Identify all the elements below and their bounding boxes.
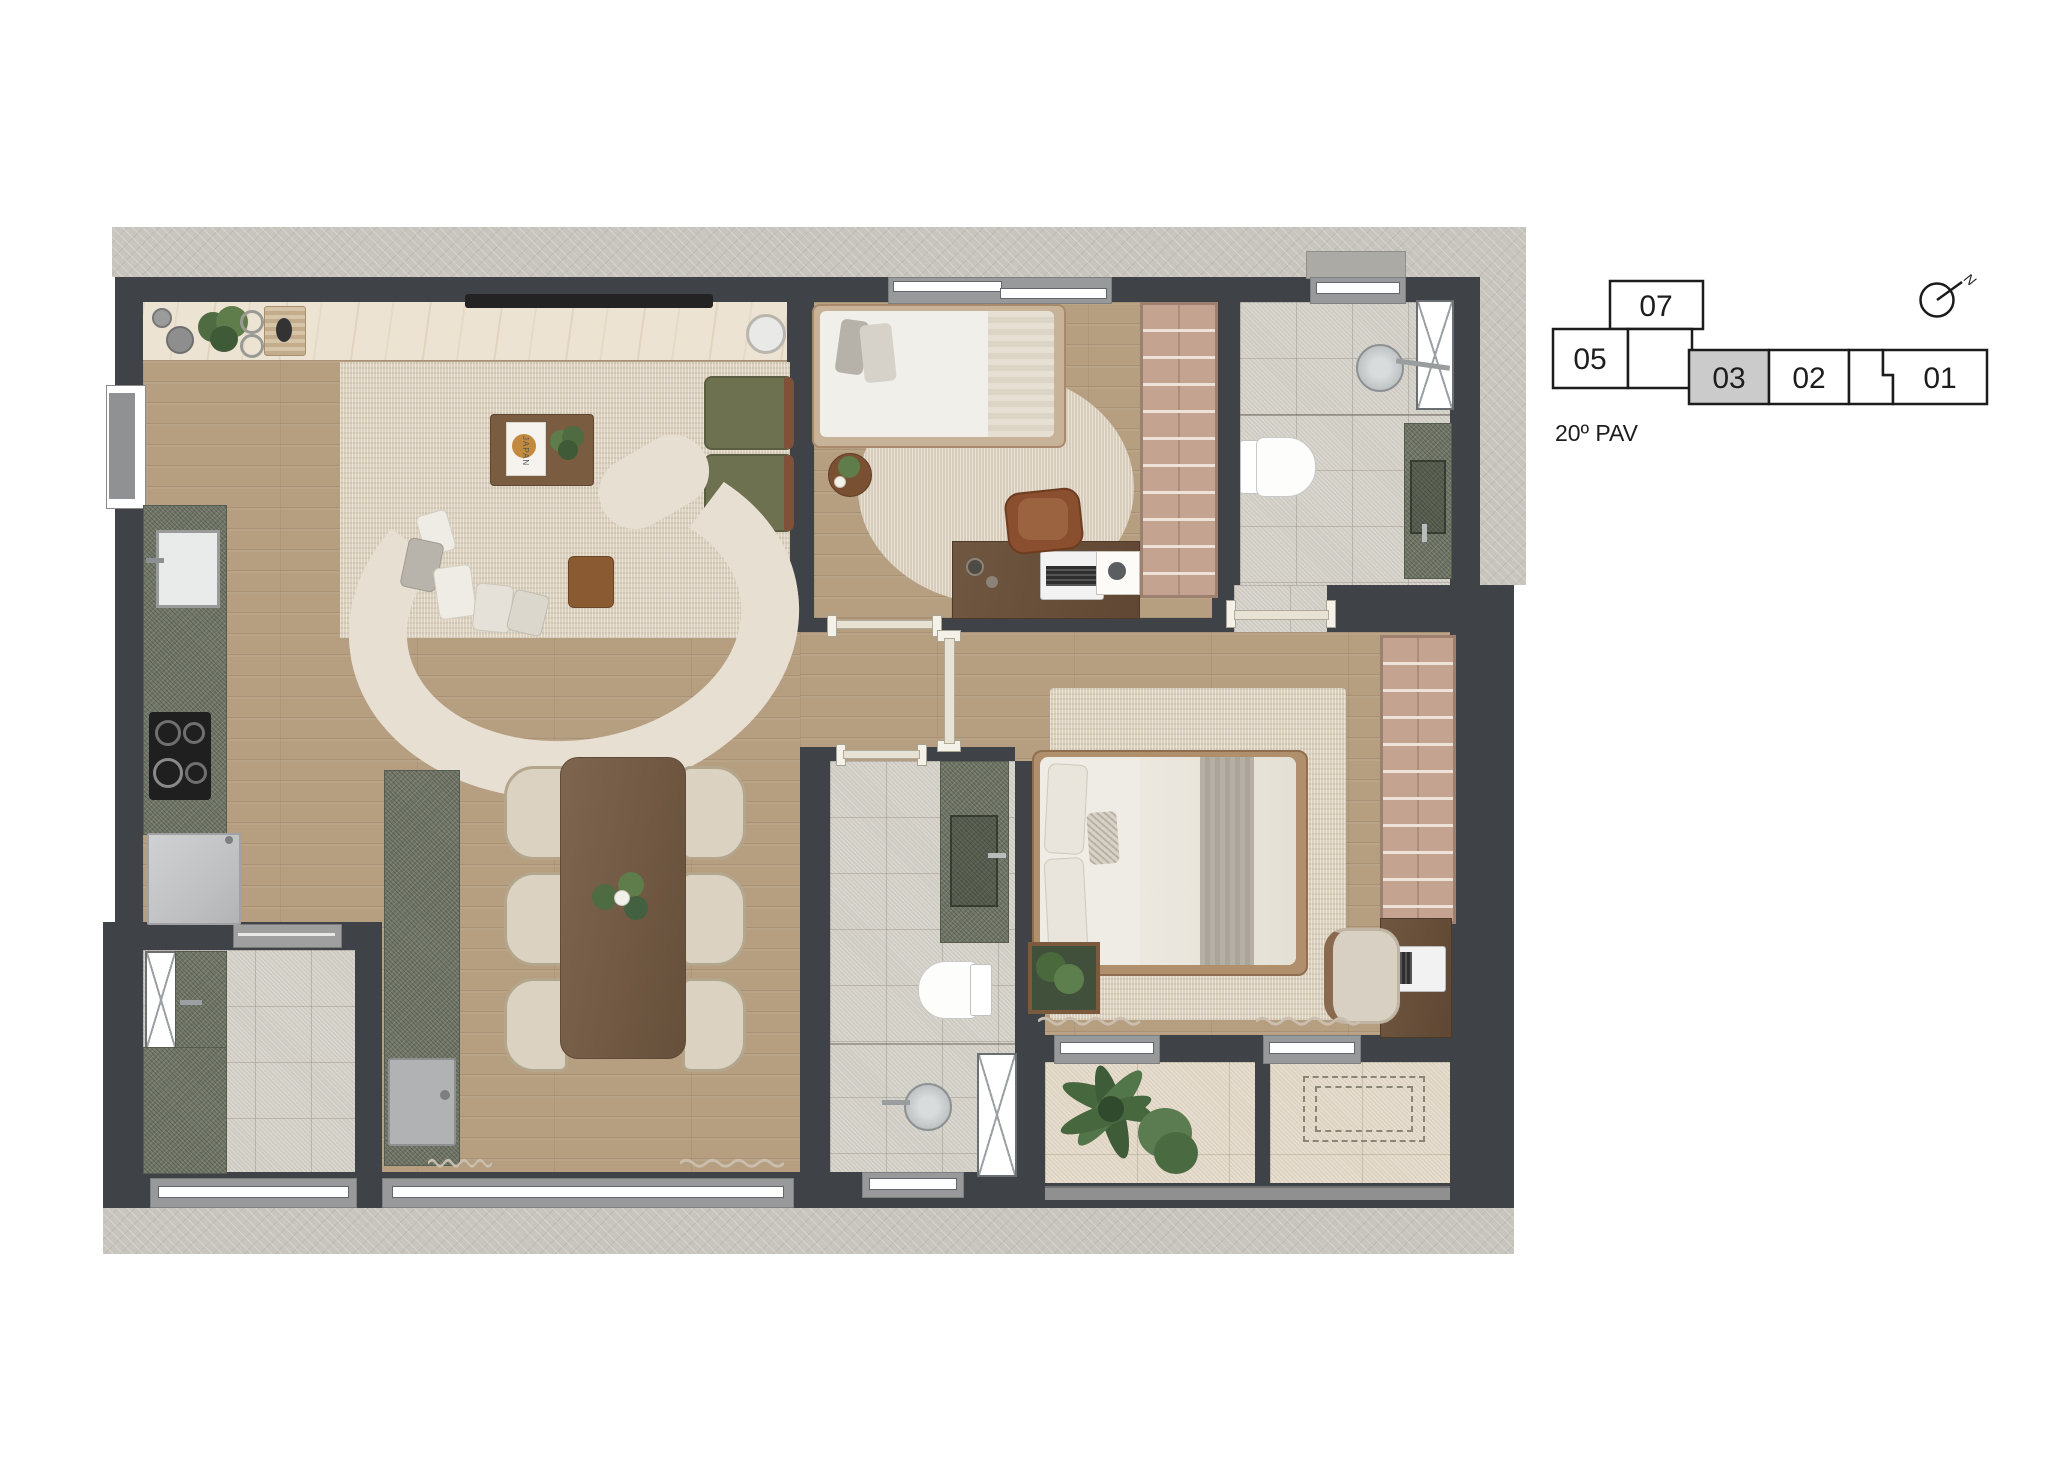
office-chair-cushion	[1018, 498, 1068, 540]
dining-chair-left-2	[504, 872, 568, 966]
shaft-laundry	[145, 951, 177, 1049]
curtain-wave-master-left	[1038, 1014, 1140, 1026]
master-door-leaf	[944, 638, 955, 744]
wall-laundry-right	[355, 922, 382, 1208]
balcony-palm	[1050, 1070, 1200, 1180]
master-throw	[1200, 757, 1254, 965]
refrigerator-hinge	[225, 836, 233, 844]
bathroom2-tile-line	[830, 1043, 1015, 1045]
dining-chair-right-3	[682, 978, 746, 1072]
side-table-plant	[838, 456, 860, 478]
cooktop-burner-1	[155, 720, 181, 746]
tv-panel	[465, 294, 713, 308]
laundry-sliding-door	[233, 924, 342, 948]
keyplan-unit-03-label: 03	[1712, 362, 1745, 395]
vessel-sink	[746, 314, 786, 354]
keyplan-unit-05-label: 05	[1573, 343, 1606, 376]
window-bedroom1-pane-right	[1000, 288, 1107, 299]
counter-ring-2	[240, 334, 264, 358]
kitchen-sink	[156, 530, 220, 608]
cooktop-burner-3	[153, 758, 183, 788]
master-wardrobe	[1380, 635, 1456, 924]
window-bedroom1-pane-left	[893, 281, 1002, 292]
bathroom2-shower-head	[904, 1083, 952, 1131]
bathroom1-faucet	[1422, 524, 1427, 542]
bathroom1-door-opening	[1234, 585, 1327, 632]
window-laundry-pane	[158, 1186, 349, 1198]
key-plan: 07 05 03 02 01 N 20º PAV	[1550, 253, 2020, 458]
cooktop-burner-2	[183, 722, 205, 744]
bathroom2-door-leaf	[843, 750, 920, 759]
floor-plan-page: JAPAN	[0, 0, 2048, 1479]
desk1-mouse	[1108, 562, 1126, 580]
concrete-band-bottom	[103, 1208, 1514, 1254]
bathroom1-shower-head	[1356, 344, 1404, 392]
dining-chair-left-1	[504, 766, 568, 860]
bathroom2-vanity-sink	[950, 815, 998, 907]
dining-centerpiece	[592, 870, 652, 924]
window-bathroom1-pane	[1316, 282, 1400, 294]
window-living-pane	[392, 1186, 784, 1198]
curtain-wave-living-left	[428, 1156, 492, 1168]
kitchen-sink-faucet	[146, 558, 164, 563]
island-appliance-handle	[440, 1090, 450, 1100]
cooktop-burner-4	[185, 762, 207, 784]
laundry-counter-lower	[143, 1047, 227, 1174]
window-master-2-pane	[1269, 1042, 1355, 1054]
ac-ledge	[1306, 251, 1406, 279]
wall-laundry-outer	[103, 922, 143, 1208]
keyplan-unit-01[interactable]: 01	[1883, 350, 1987, 404]
dining-chair-right-2	[682, 872, 746, 966]
island-appliance	[388, 1058, 456, 1146]
book-title: JAPAN	[521, 436, 530, 466]
dining-chair-left-3	[504, 978, 568, 1072]
coffee-table-plant	[550, 426, 586, 462]
counter-ring-1	[240, 310, 264, 334]
keyplan-unit-01-label: 01	[1923, 362, 1956, 395]
keyplan-unit-02-label: 02	[1792, 362, 1825, 395]
bathroom1-shower-line	[1240, 414, 1450, 416]
window-master-1-pane	[1060, 1042, 1154, 1054]
shaft-bathroom2	[977, 1053, 1017, 1177]
window-bathroom2-pane	[869, 1178, 957, 1190]
armchair-1	[704, 376, 794, 450]
bedroom1-wardrobe	[1140, 302, 1218, 598]
sofa-side-table	[568, 556, 614, 608]
desk1-laptop-keys	[1046, 566, 1096, 586]
keyplan-unit-07[interactable]: 07	[1610, 281, 1703, 329]
bathroom2-toilet-bowl	[918, 961, 978, 1019]
concrete-band-right	[1480, 277, 1526, 585]
master-accent-pillow	[1086, 811, 1120, 865]
keyplan-unit-02[interactable]: 02	[1769, 350, 1849, 404]
north-arrow-icon: N	[1921, 270, 1980, 316]
refrigerator	[147, 833, 241, 925]
curtain-wave-master-right	[1256, 1014, 1360, 1026]
sofa-pillow-3	[433, 564, 478, 621]
bathroom2-shower-arm	[882, 1100, 910, 1105]
bathroom2-faucet	[988, 853, 1006, 858]
laundry-faucet	[180, 1000, 202, 1005]
bedroom1-blanket	[988, 311, 1054, 437]
master-pillow-1	[1044, 763, 1089, 855]
bathroom1-vanity-sink	[1410, 460, 1446, 534]
keyplan-unit-03[interactable]: 03	[1689, 350, 1769, 404]
balcony-sill	[1045, 1186, 1450, 1200]
master-pillow-2	[1044, 857, 1089, 953]
bedroom1-door-leaf	[836, 620, 933, 629]
basket-bottle	[276, 318, 292, 342]
bathroom1-toilet-bowl	[1256, 437, 1316, 497]
master-planter	[1028, 942, 1100, 1014]
curtain-wave-living-right	[680, 1156, 784, 1168]
counter-knob-small	[152, 308, 172, 328]
master-desk-chair	[1324, 928, 1400, 1024]
keyplan-unit-blank	[1628, 329, 1692, 388]
keyplan-floor-label: 20º PAV	[1555, 420, 1639, 446]
counter-knob-large	[166, 326, 194, 354]
keyplan-unit-07-label: 07	[1639, 290, 1672, 323]
side-table-candle	[834, 476, 846, 488]
north-label: N	[1961, 270, 1980, 289]
desk1-mug	[966, 558, 984, 576]
wall-right-lower	[1480, 585, 1514, 1208]
laundry-door-track	[238, 933, 335, 936]
bedroom1-pillow-2	[859, 322, 897, 383]
wall-bathroom2-left	[800, 761, 830, 1183]
bathroom2-toilet-tank	[970, 964, 992, 1016]
keyplan-unit-05[interactable]: 05	[1553, 329, 1628, 388]
window-left-glass	[109, 393, 135, 499]
balcony-ac-dashed-inner	[1315, 1086, 1413, 1132]
desk1-coaster	[986, 576, 998, 588]
bathroom1-door-leaf	[1234, 610, 1329, 620]
shaft-bathroom1	[1416, 300, 1454, 410]
dining-chair-right-1	[682, 766, 746, 860]
